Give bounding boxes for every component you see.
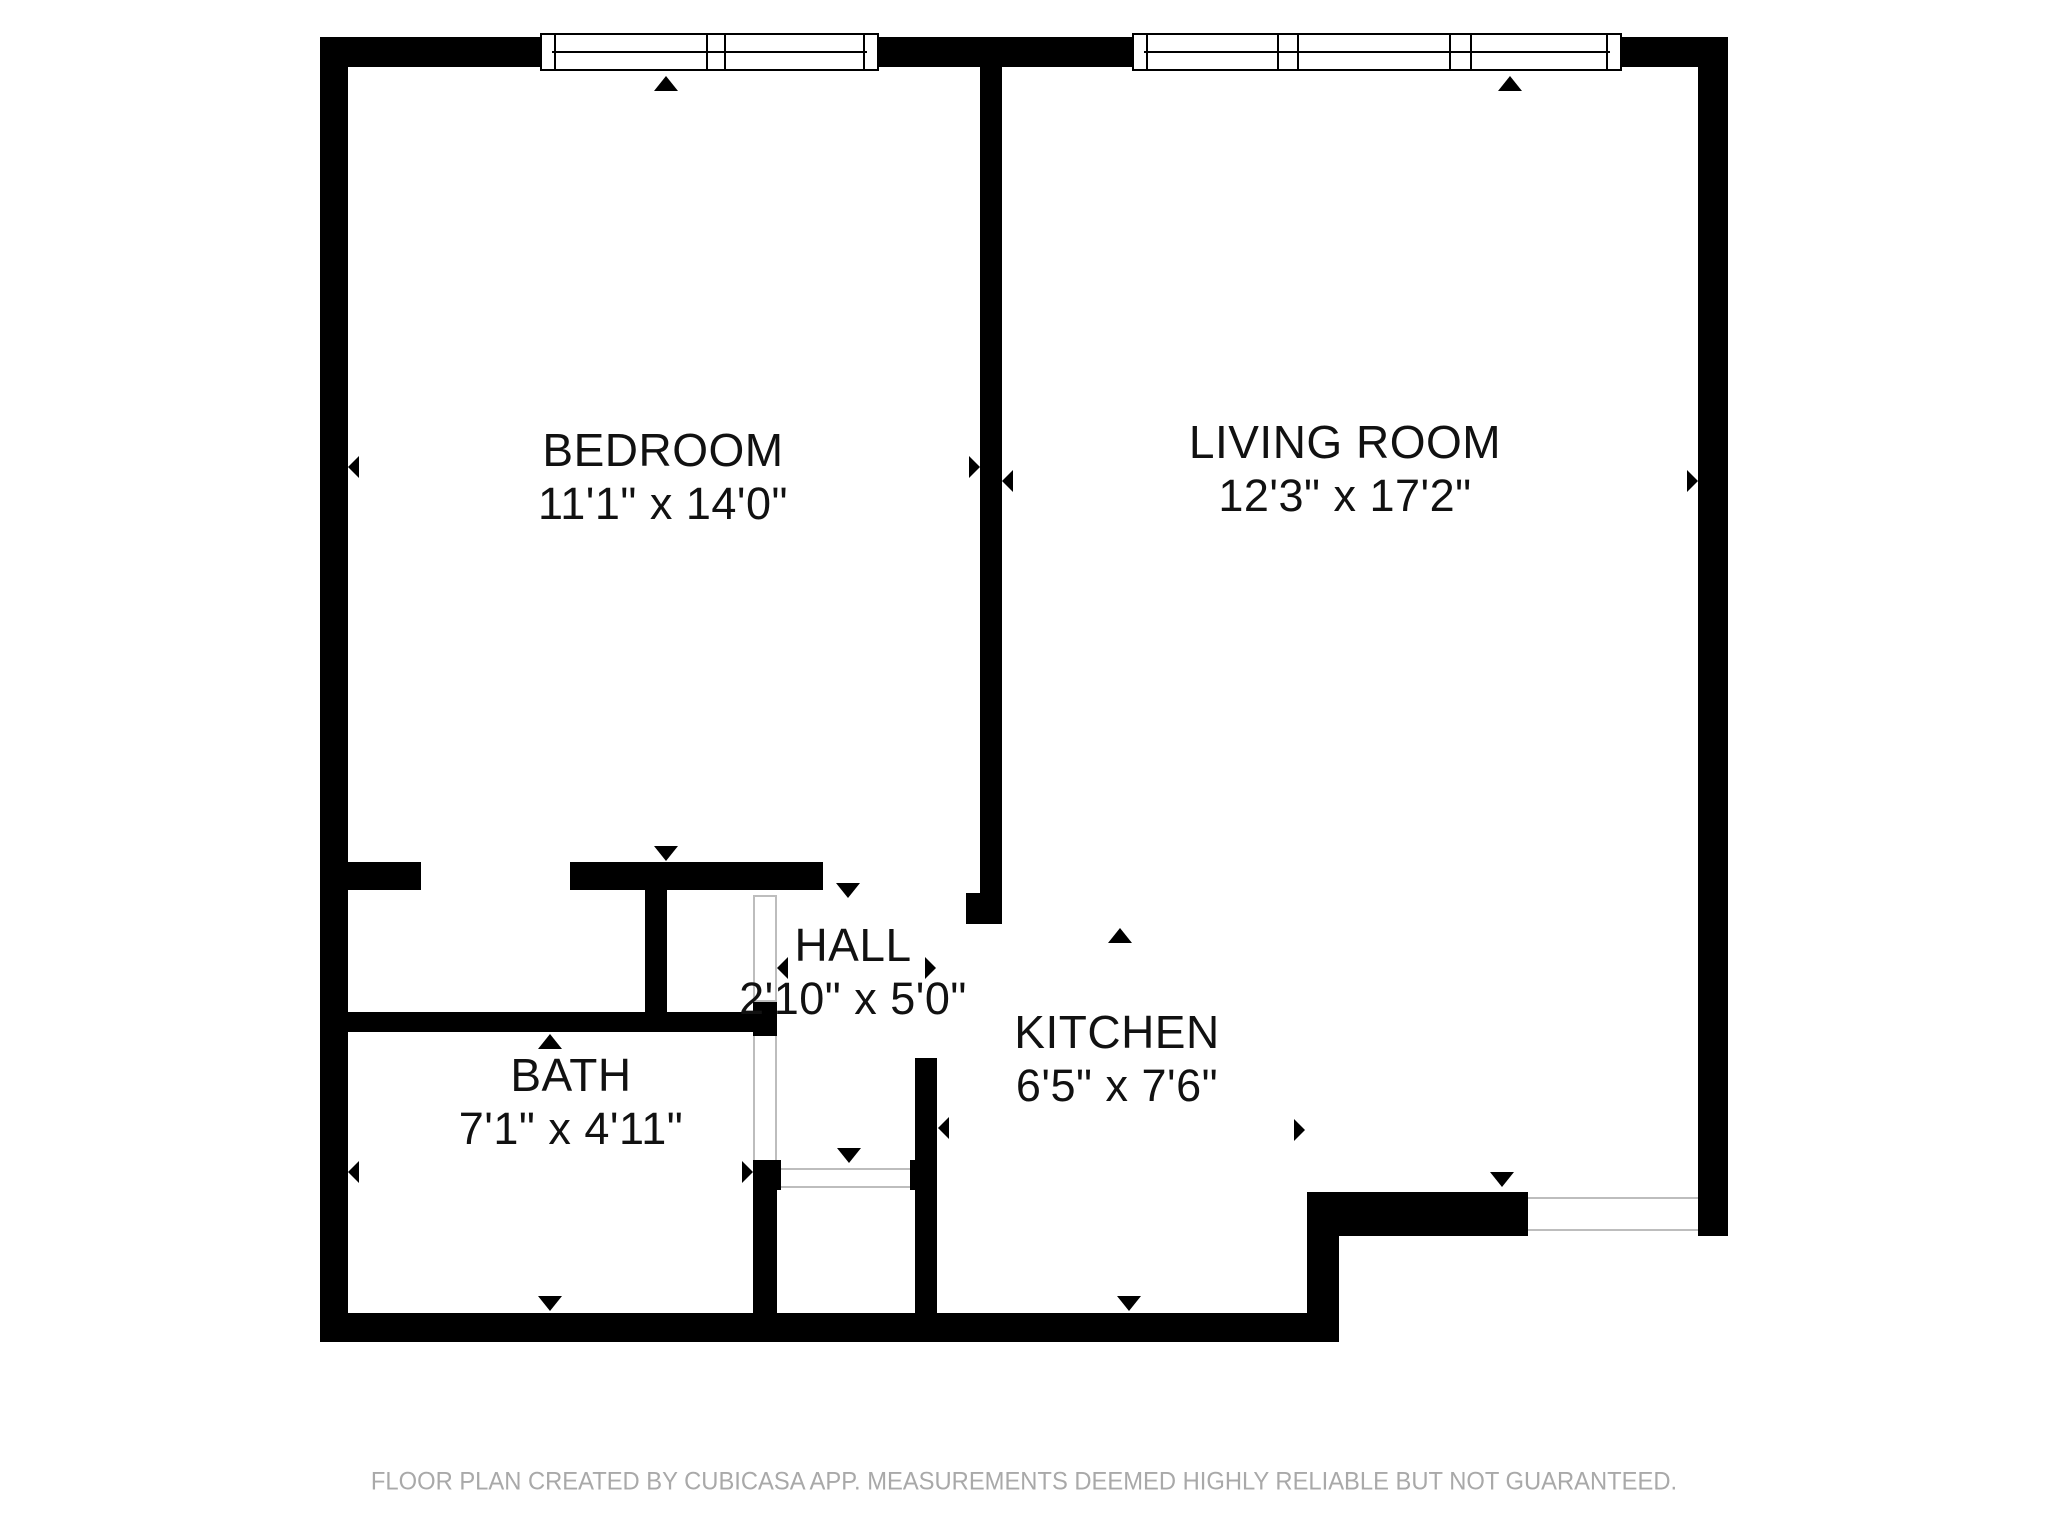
measure-arrow-up-icon bbox=[654, 76, 678, 91]
room-dimensions: 6'5" x 7'6" bbox=[1014, 1059, 1219, 1112]
window-frame-line bbox=[863, 35, 865, 69]
wall-kitchen-right bbox=[1307, 1236, 1339, 1313]
wall-right bbox=[1698, 37, 1728, 1236]
room-label-living-room: LIVING ROOM 12'3" x 17'2" bbox=[1189, 416, 1501, 522]
measure-arrow-left-icon bbox=[348, 1161, 359, 1183]
room-label-bath: BATH 7'1" x 4'11" bbox=[459, 1049, 683, 1155]
room-dimensions: 12'3" x 17'2" bbox=[1189, 469, 1501, 522]
wall-bedroom-bottom-right bbox=[570, 862, 823, 890]
measure-arrow-up-icon bbox=[1108, 928, 1132, 943]
measure-arrow-left-icon bbox=[348, 456, 359, 478]
bath-door-opening bbox=[753, 1036, 777, 1160]
wall-bottom bbox=[320, 1313, 1339, 1342]
door-line bbox=[781, 1186, 910, 1188]
wall-bath-top bbox=[348, 1012, 753, 1032]
living-room-window bbox=[1132, 33, 1622, 71]
living-room-exit-door bbox=[1528, 1192, 1698, 1236]
door-line bbox=[1528, 1197, 1698, 1199]
window-mullion-line bbox=[1470, 35, 1472, 69]
window-mullion-line bbox=[706, 35, 708, 69]
wall-closet-stub bbox=[645, 890, 667, 1012]
room-label-bedroom: BEDROOM 11'1" x 14'0" bbox=[538, 424, 788, 530]
creator-disclaimer-text: FLOOR PLAN CREATED BY CUBICASA APP. MEAS… bbox=[371, 1468, 1677, 1497]
measure-arrow-down-icon bbox=[654, 846, 678, 861]
wall-divider-foot bbox=[966, 893, 1002, 924]
wall-living-bottom bbox=[1307, 1192, 1528, 1236]
window-frame-line bbox=[1146, 35, 1148, 69]
measure-arrow-right-icon bbox=[1294, 1119, 1305, 1141]
room-name: BATH bbox=[459, 1049, 683, 1102]
window-frame-line bbox=[554, 35, 556, 69]
wall-entry-cap-left bbox=[753, 1160, 781, 1190]
wall-bedroom-living-divider bbox=[980, 67, 1002, 893]
measure-arrow-down-icon bbox=[836, 883, 860, 898]
door-line bbox=[1528, 1229, 1698, 1231]
bedroom-window bbox=[540, 33, 879, 71]
measure-arrow-down-icon bbox=[538, 1296, 562, 1311]
measure-arrow-right-icon bbox=[969, 456, 980, 478]
room-label-kitchen: KITCHEN 6'5" x 7'6" bbox=[1014, 1006, 1219, 1112]
measure-arrow-left-icon bbox=[1002, 470, 1013, 492]
room-dimensions: 7'1" x 4'11" bbox=[459, 1102, 683, 1155]
room-name: LIVING ROOM bbox=[1189, 416, 1501, 469]
room-label-hall: HALL 2'10" x 5'0" bbox=[739, 919, 967, 1025]
room-name: BEDROOM bbox=[538, 424, 788, 477]
room-name: KITCHEN bbox=[1014, 1006, 1219, 1059]
window-mullion-line bbox=[724, 35, 726, 69]
window-mullion-line bbox=[1277, 35, 1279, 69]
wall-bedroom-bottom-left bbox=[348, 862, 421, 890]
entry-door bbox=[781, 1160, 910, 1190]
measure-arrow-right-icon bbox=[742, 1161, 753, 1183]
window-glass-line bbox=[552, 51, 867, 53]
room-name: HALL bbox=[739, 919, 967, 972]
measure-arrow-down-icon bbox=[837, 1148, 861, 1163]
room-dimensions: 11'1" x 14'0" bbox=[538, 477, 788, 530]
door-line bbox=[781, 1168, 910, 1170]
window-mullion-line bbox=[1297, 35, 1299, 69]
window-frame-line bbox=[1606, 35, 1608, 69]
floor-plan-canvas: BEDROOM 11'1" x 14'0" LIVING ROOM 12'3" … bbox=[0, 0, 2048, 1536]
measure-arrow-up-icon bbox=[538, 1034, 562, 1049]
measure-arrow-left-icon bbox=[938, 1117, 949, 1139]
measure-arrow-down-icon bbox=[1117, 1296, 1141, 1311]
measure-arrow-right-icon bbox=[1687, 470, 1698, 492]
wall-left bbox=[320, 37, 348, 1342]
window-mullion-line bbox=[1449, 35, 1451, 69]
room-dimensions: 2'10" x 5'0" bbox=[739, 972, 967, 1025]
measure-arrow-down-icon bbox=[1490, 1172, 1514, 1187]
wall-entry-cap-right bbox=[910, 1160, 937, 1190]
window-glass-line bbox=[1144, 51, 1610, 53]
measure-arrow-up-icon bbox=[1498, 76, 1522, 91]
